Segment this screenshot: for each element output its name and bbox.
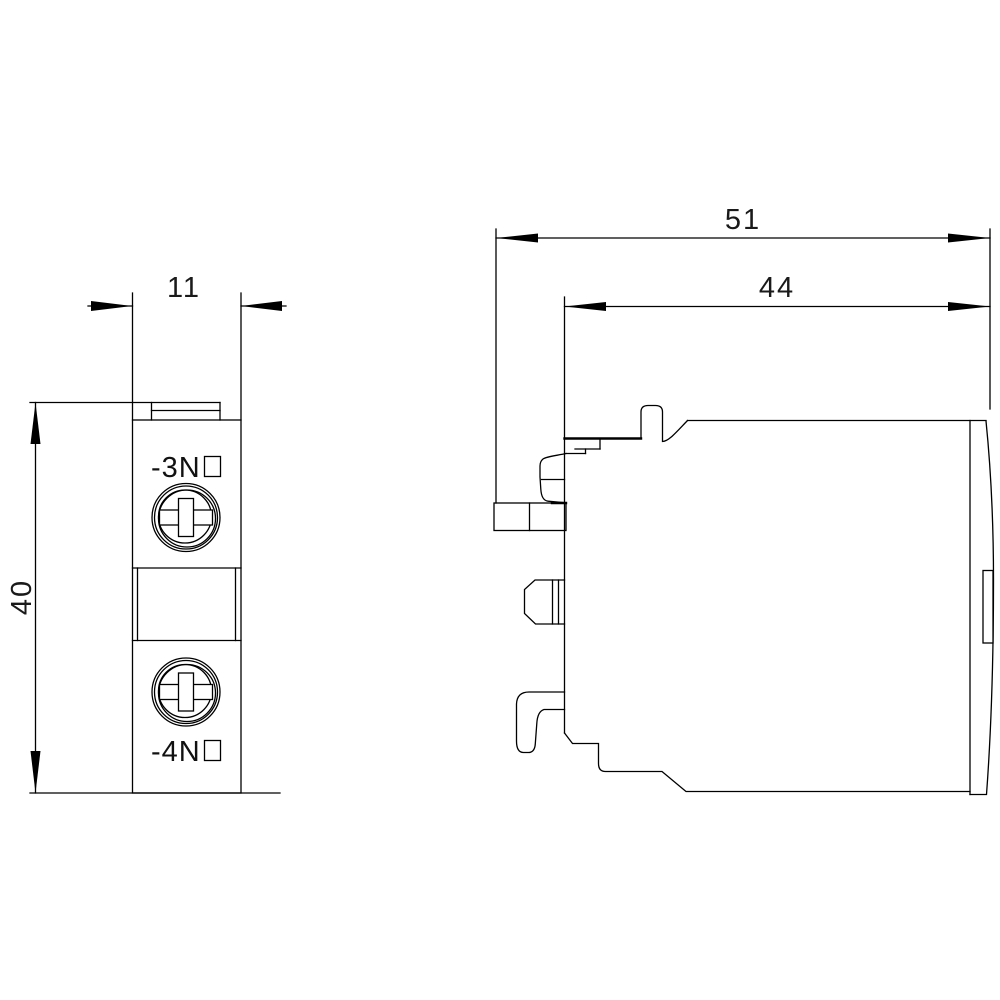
open-box-symbol-icon (205, 741, 221, 761)
arrowhead-icon (496, 234, 538, 243)
open-box-symbol-icon (205, 457, 221, 477)
rear-panel-clip (983, 571, 993, 644)
dim-overall-depth-label: 51 (725, 204, 761, 236)
dim-height-label: 40 (6, 579, 38, 615)
dimension-drawing-page: 11 40 (0, 0, 1000, 1000)
arrowhead-icon (91, 301, 133, 311)
technical-drawing: 11 40 (0, 0, 1000, 1000)
terminal-screw-top (152, 484, 220, 552)
screw-slot-vertical-icon (179, 499, 194, 537)
arrowhead-icon (948, 302, 990, 311)
bottom-hook (517, 692, 565, 753)
dim-overall-depth: 51 (496, 204, 990, 503)
side-view: 51 44 (494, 204, 994, 795)
dim-width-label: 11 (167, 272, 201, 304)
terminal-top-text: -3N (151, 452, 201, 484)
arrowhead-icon (241, 301, 282, 311)
arrowhead-icon (948, 234, 990, 243)
front-view: 11 40 (6, 272, 286, 793)
dim-body-depth-label: 44 (759, 272, 795, 304)
terminal-label-top: -3N (151, 452, 221, 484)
bottom-edge (565, 733, 971, 792)
arrowhead-icon (565, 302, 607, 311)
top-hook-tab (641, 406, 688, 442)
terminal-label-bottom: -4N (151, 736, 221, 768)
arrowhead-icon (31, 403, 41, 445)
terminal-screw-bottom (152, 658, 220, 726)
dim-height: 40 (6, 403, 280, 794)
module-side-outline (494, 406, 994, 795)
dim-body-depth: 44 (565, 272, 991, 733)
screw-slot-vertical-icon (179, 673, 194, 711)
arrowhead-icon (31, 751, 41, 793)
rail-latch-lug (540, 454, 566, 503)
terminal-bottom-text: -4N (151, 736, 201, 768)
dim-width: 11 (88, 272, 286, 420)
